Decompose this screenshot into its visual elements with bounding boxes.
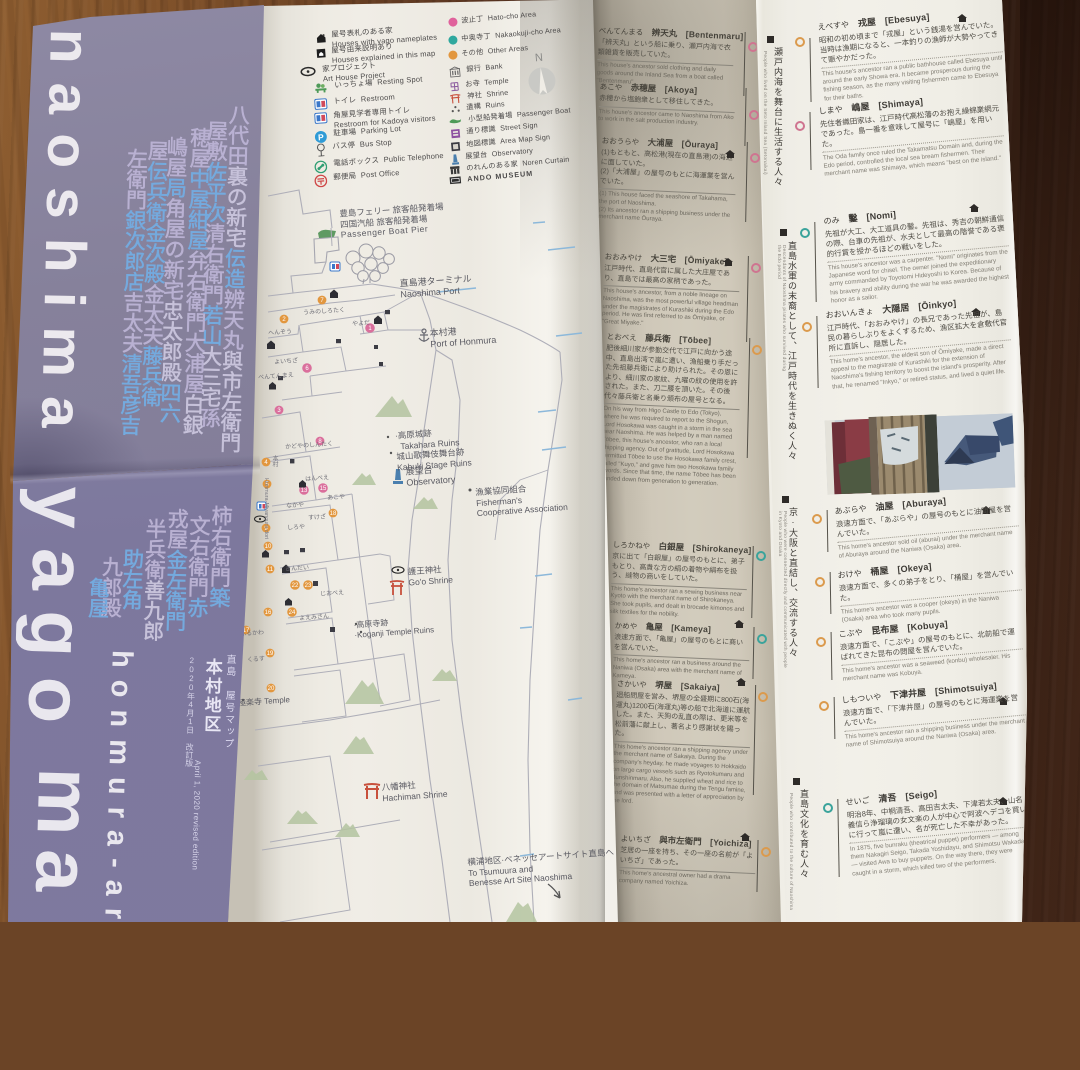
svg-text:18: 18 xyxy=(330,511,337,517)
svg-text:23: 23 xyxy=(305,583,312,589)
svg-text:15: 15 xyxy=(320,486,327,492)
svg-text:13: 13 xyxy=(301,488,308,494)
svg-text:22: 22 xyxy=(292,583,299,589)
svg-text:16: 16 xyxy=(265,610,272,616)
svg-text:20: 20 xyxy=(268,686,275,692)
svg-text:19: 19 xyxy=(267,651,274,657)
svg-text:24: 24 xyxy=(289,610,296,616)
